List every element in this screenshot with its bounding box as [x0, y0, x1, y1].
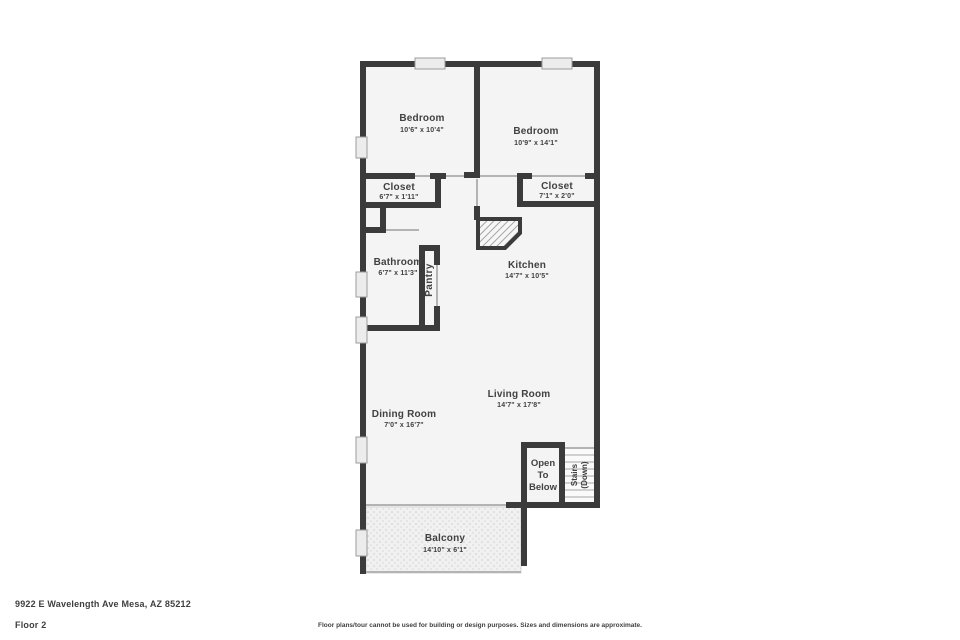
room-label-kitchen: Kitchen: [508, 260, 546, 271]
room-dims-dining-room: 7'0" x 16'7": [384, 422, 424, 429]
stairs-label-line-1: Stairs: [570, 463, 579, 486]
address-text: 9922 E Wavelength Ave Mesa, AZ 85212: [15, 599, 191, 609]
room-label-pantry: Pantry: [424, 263, 435, 297]
room-label-bedroom-1: Bedroom: [399, 113, 444, 124]
room-label-dining-room: Dining Room: [372, 409, 436, 420]
room-dims-bedroom-2: 10'9" x 14'1": [514, 140, 558, 147]
room-dims-closet-1: 6'7" x 1'11": [379, 194, 418, 201]
room-dims-closet-2: 7'1" x 2'0": [539, 193, 575, 200]
floorplan-page: Bedroom 10'6" x 10'4" Bedroom 10'9" x 14…: [0, 0, 960, 640]
floor-plan-drawing: Bedroom 10'6" x 10'4" Bedroom 10'9" x 14…: [0, 0, 960, 640]
disclaimer-text: Floor plans/tour cannot be used for buil…: [0, 622, 960, 629]
room-label-bathroom: Bathroom: [374, 257, 423, 268]
room-label-balcony: Balcony: [425, 533, 466, 544]
room-label-closet-1: Closet: [383, 182, 415, 193]
room-label-living-room: Living Room: [488, 389, 551, 400]
open-to-below-line-3: Below: [529, 482, 558, 493]
room-dims-balcony: 14'10" x 6'1": [423, 547, 467, 554]
room-label-closet-2: Closet: [541, 181, 573, 192]
room-dims-bathroom: 6'7" x 11'3": [378, 270, 417, 277]
room-dims-living-room: 14'7" x 17'8": [497, 402, 541, 409]
open-to-below-line-2: To: [538, 470, 549, 481]
open-to-below-line-1: Open: [531, 458, 555, 469]
room-label-bedroom-2: Bedroom: [513, 126, 558, 137]
stairs-label-line-2: (Down): [580, 461, 589, 488]
room-dims-kitchen: 14'7" x 10'5": [505, 273, 549, 280]
room-dims-bedroom-1: 10'6" x 10'4": [400, 127, 444, 134]
